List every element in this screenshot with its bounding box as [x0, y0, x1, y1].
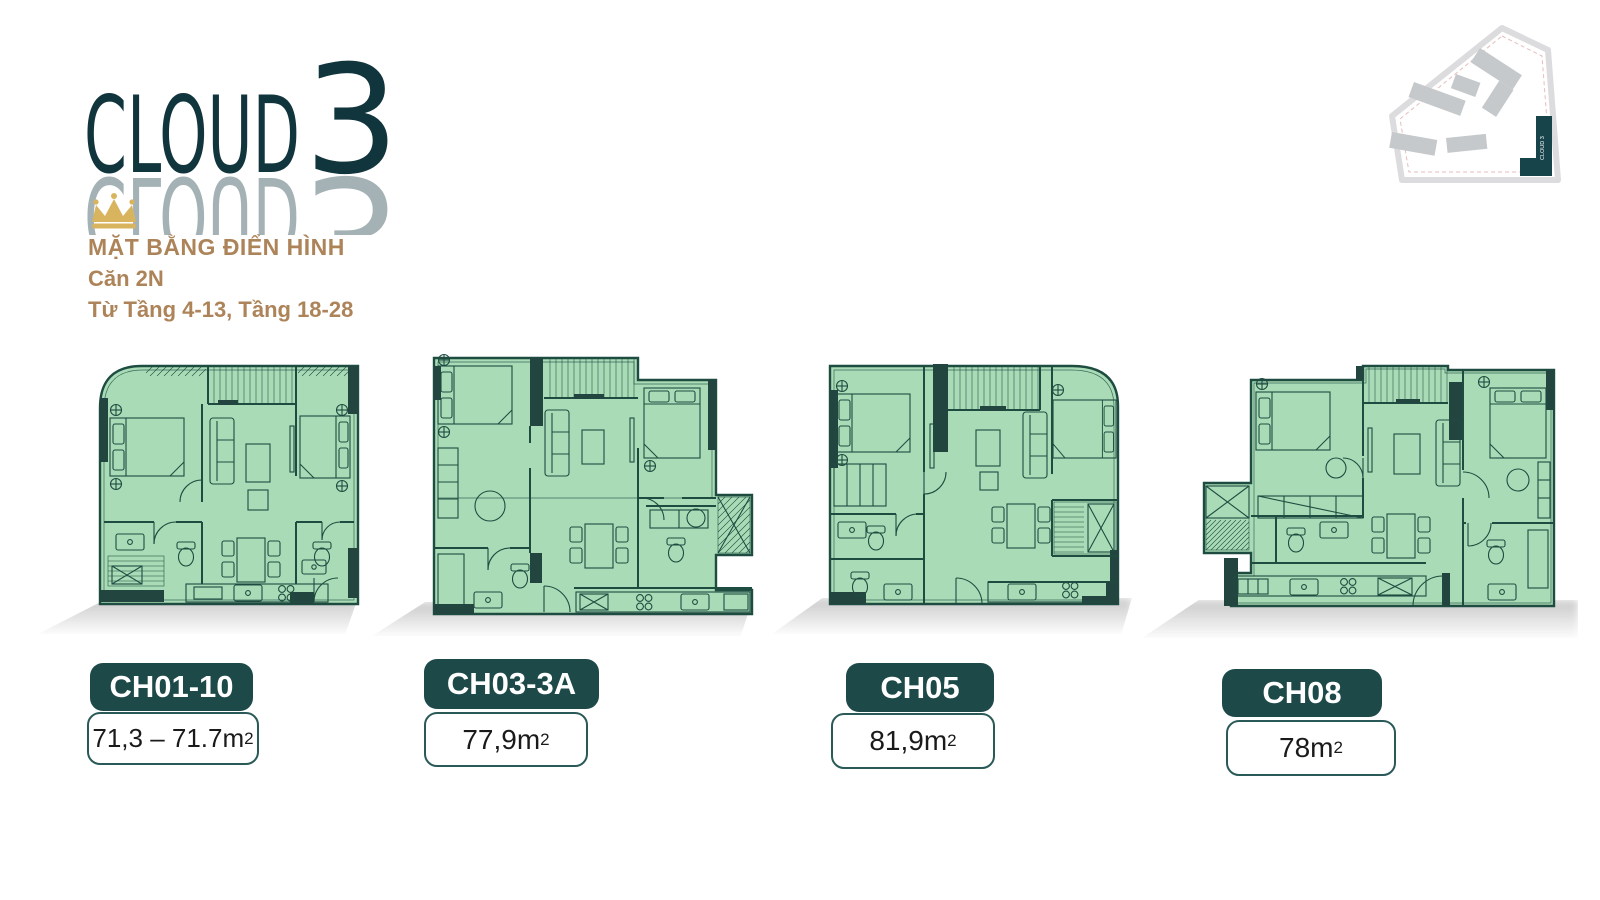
cloud3-building-label: CLOUD 3 — [1540, 136, 1546, 160]
site-boundary — [1392, 28, 1558, 180]
page-title: MẶT BẰNG ĐIỂN HÌNH — [88, 232, 353, 263]
floorplan-ch08 — [1196, 358, 1558, 612]
svg-text:3: 3 — [304, 142, 399, 235]
floor-range-label: Từ Tầng 4-13, Tầng 18-28 — [88, 294, 353, 325]
unit-badge-ch03-3a: CH03-3A — [424, 659, 599, 709]
unit-type-label: Căn 2N — [88, 263, 353, 294]
area-value: 81,9m — [869, 725, 947, 757]
unit-area-ch03-3a: 77,9m2 — [424, 712, 588, 767]
floorplan-ch03-3a — [424, 348, 756, 620]
floorplan-ch05 — [820, 354, 1136, 614]
area-value: 78m — [1279, 732, 1333, 764]
unit-badge-ch08: CH08 — [1222, 669, 1382, 717]
area-value: 71,3 – 71.7m — [92, 723, 244, 754]
unit-area-ch08: 78m2 — [1226, 720, 1396, 776]
unit-badge-ch01-10: CH01-10 — [90, 663, 253, 711]
area-value: 77,9m — [462, 724, 540, 756]
site-map: CLOUD 3 — [1362, 20, 1597, 198]
heading-block: MẶT BẰNG ĐIỂN HÌNH Căn 2N Từ Tầng 4-13, … — [88, 232, 353, 325]
unit-badge-ch05: CH05 — [846, 663, 994, 712]
unit-area-ch01-10: 71,3 – 71.7m2 — [87, 712, 259, 765]
floorplan-ch01-10 — [90, 356, 368, 614]
crown-icon — [86, 192, 142, 232]
unit-area-ch05: 81,9m2 — [831, 713, 995, 769]
